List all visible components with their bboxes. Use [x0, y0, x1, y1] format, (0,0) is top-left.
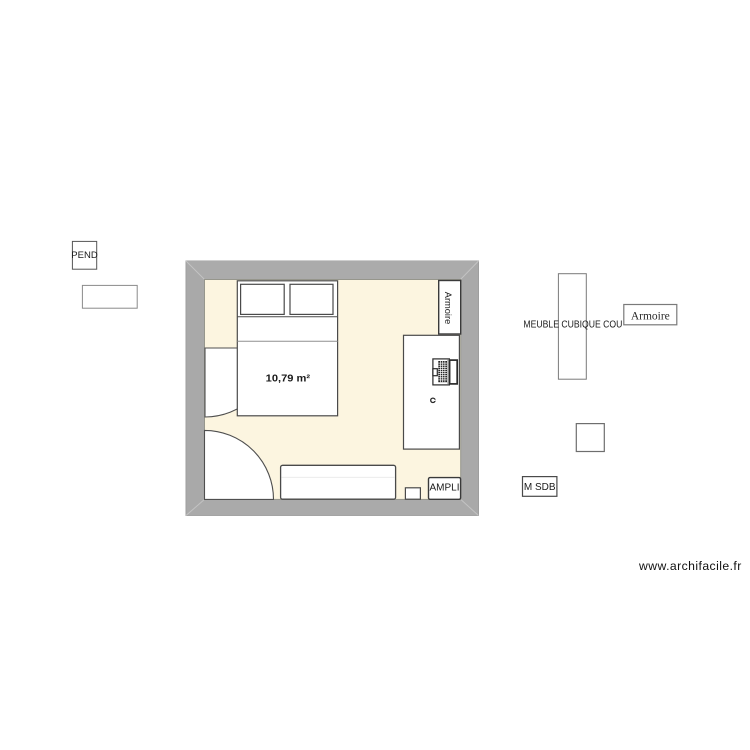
svg-text:www.archifacile.fr: www.archifacile.fr [638, 559, 741, 573]
svg-text:10,79 m²: 10,79 m² [266, 374, 311, 385]
svg-text:PEND: PEND [71, 250, 98, 261]
svg-text:AMPLI: AMPLI [429, 483, 459, 494]
svg-text:MEUBLE CUBIQUE COU: MEUBLE CUBIQUE COU [523, 320, 622, 331]
svg-text:Armoire: Armoire [631, 311, 670, 323]
svg-text:M SDB: M SDB [524, 482, 556, 493]
svg-text:Armoire: Armoire [442, 292, 453, 325]
